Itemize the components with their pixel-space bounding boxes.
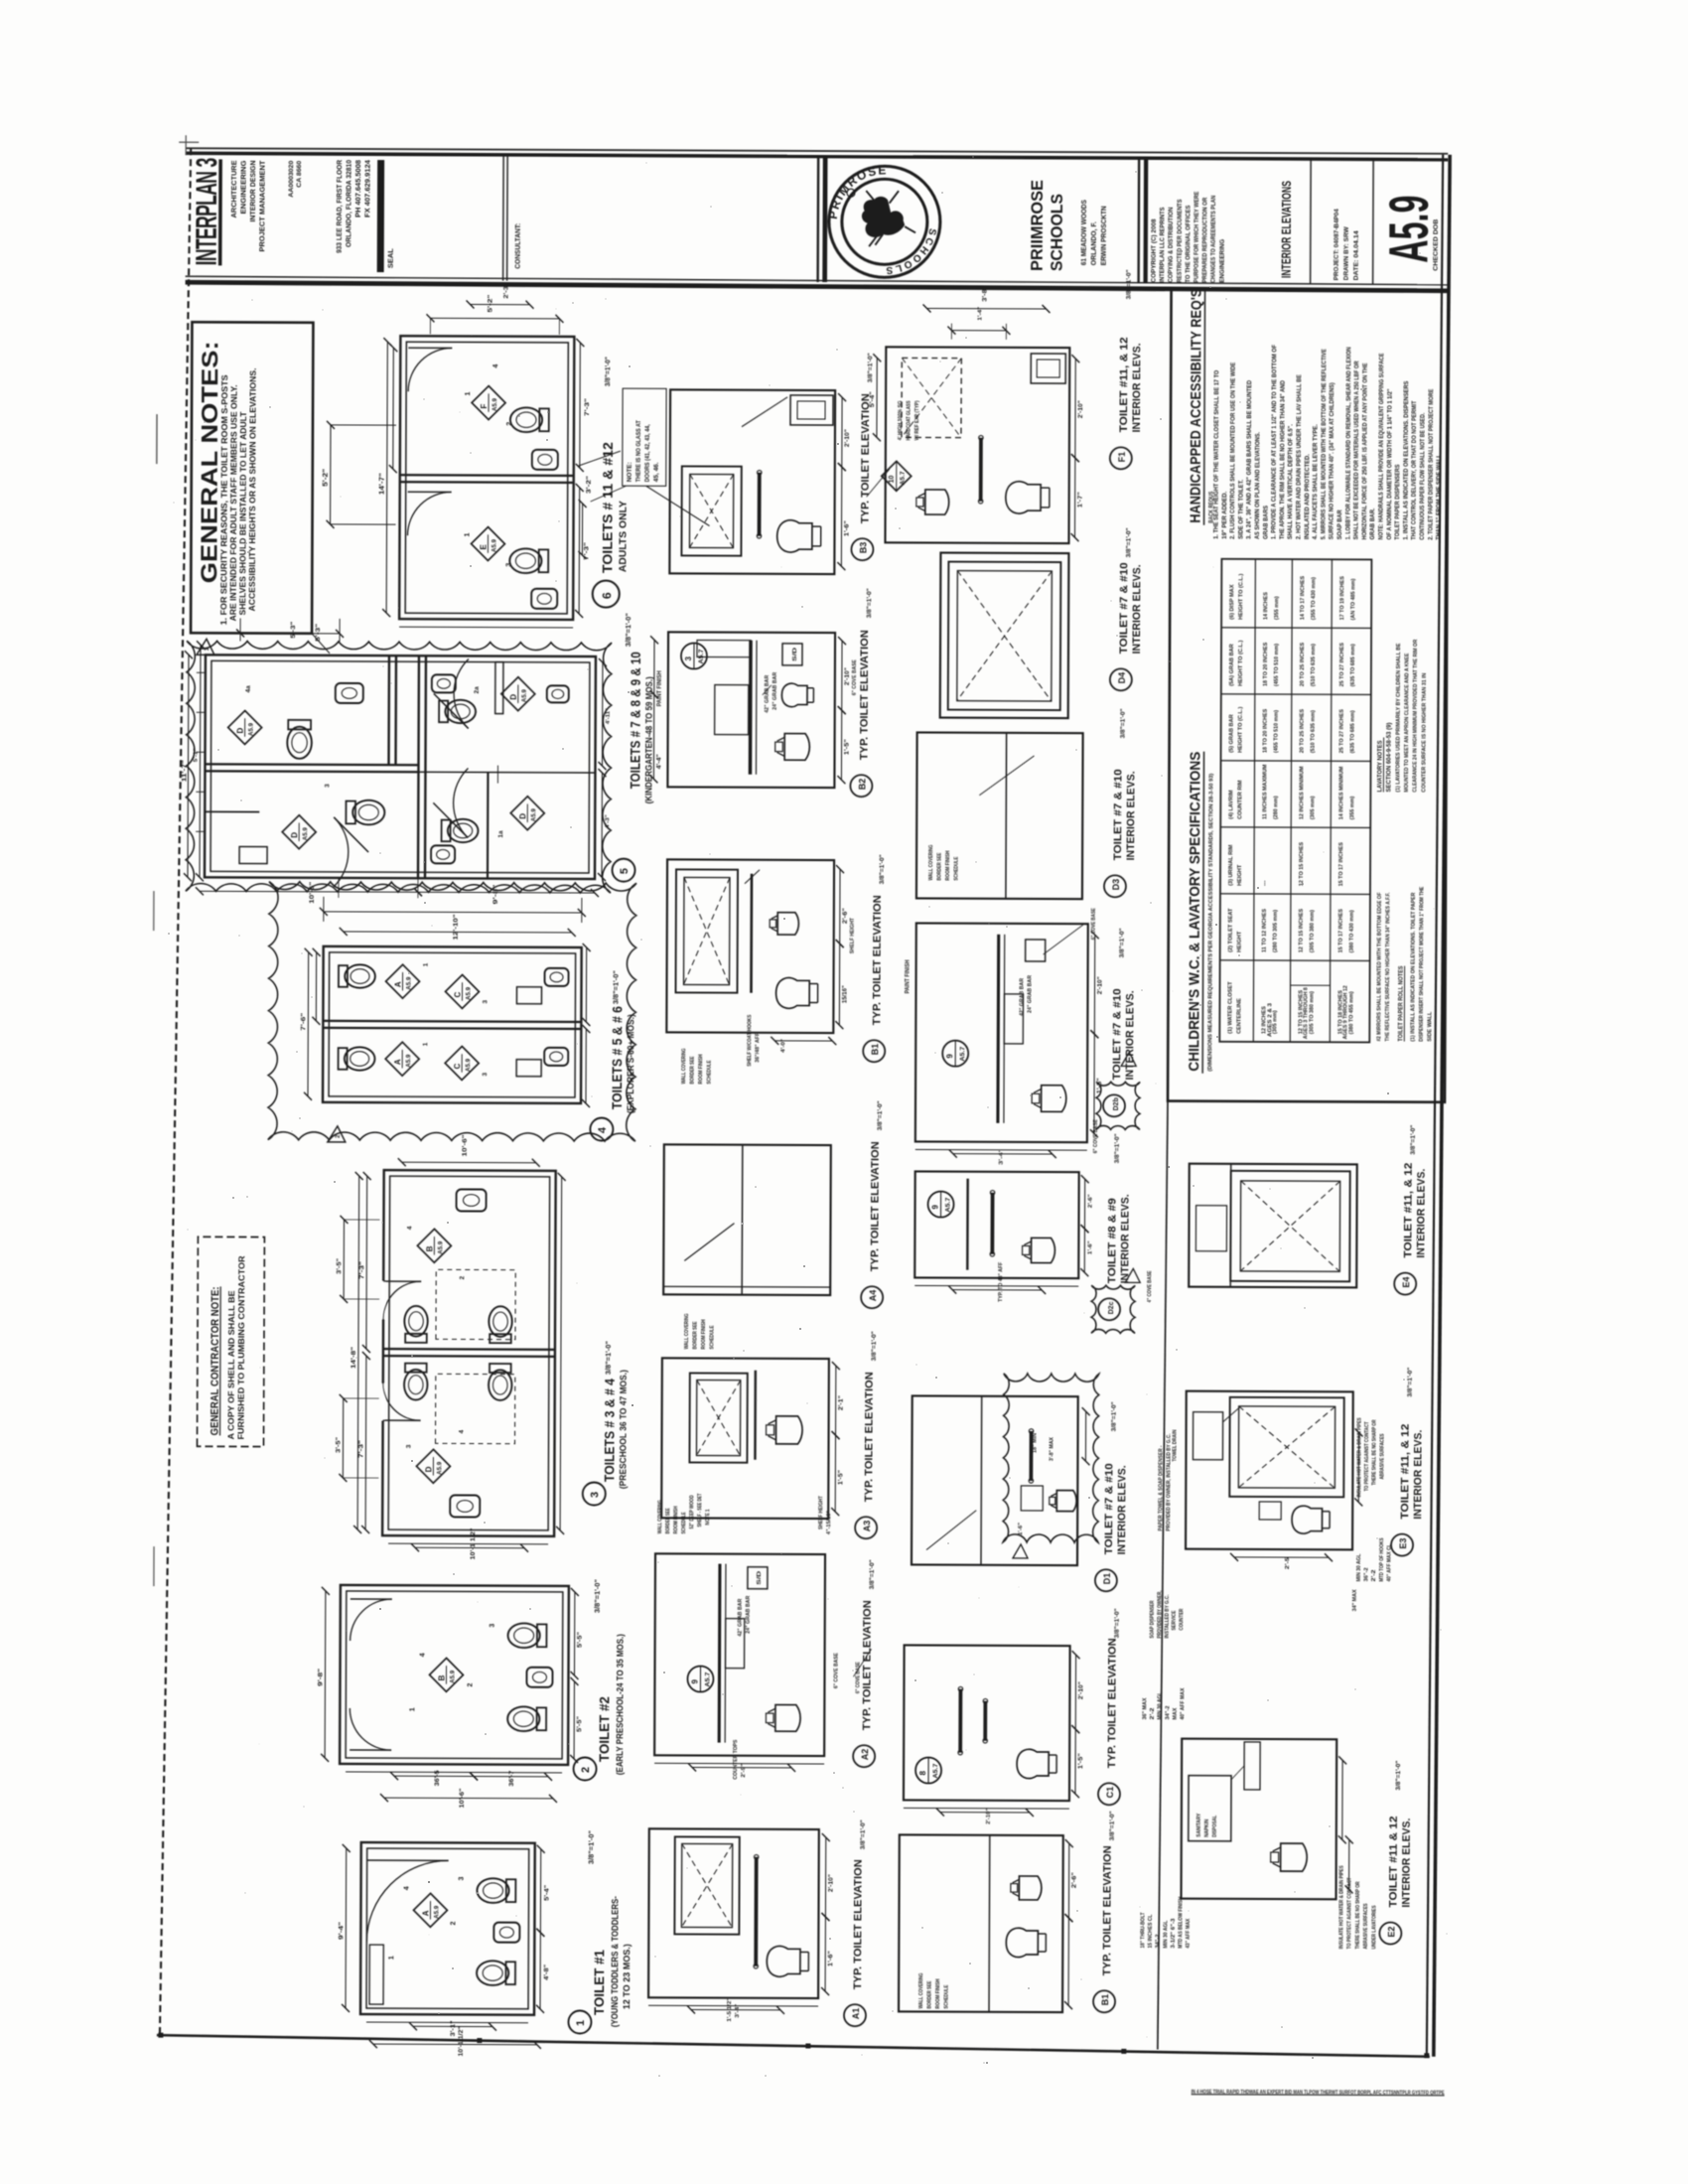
svg-text:A5.7: A5.7 xyxy=(945,1197,952,1212)
svg-text:D: D xyxy=(236,727,245,733)
svg-text:(5A) GRAB BAR: (5A) GRAB BAR xyxy=(1229,644,1235,686)
svg-text:3'-8": 3'-8" xyxy=(983,286,989,302)
svg-text:PRIIMROSE: PRIIMROSE xyxy=(1028,180,1047,271)
svg-text:25 TO 27 INCHES: 25 TO 27 INCHES xyxy=(1339,643,1345,687)
svg-text:11 TO 12 INCHES: 11 TO 12 INCHES xyxy=(1262,909,1268,952)
svg-text:1. FOR SECURITY REASONS, THE T: 1. FOR SECURITY REASONS, THE TOILET ROOM… xyxy=(219,374,229,626)
svg-text:DOORS (41, 42, 43, 44,: DOORS (41, 42, 43, 44, xyxy=(644,424,651,482)
svg-text:2'-2: 2'-2 xyxy=(1150,1707,1156,1719)
svg-text:1: 1 xyxy=(575,2020,587,2026)
svg-text:THAN 1" FROM THE SIDE WALL.: THAN 1" FROM THE SIDE WALL. xyxy=(1436,452,1443,539)
svg-text:D4: D4 xyxy=(1117,672,1127,684)
svg-text:8: 8 xyxy=(918,1770,927,1775)
svg-text:A5.9: A5.9 xyxy=(437,1461,443,1475)
svg-text:2. TOILET PAPER DISPENSER SHA: 2. TOILET PAPER DISPENSER SHALL NOT PROJ… xyxy=(1427,389,1435,540)
svg-text:(510 TO 635 mm): (510 TO 635 mm) xyxy=(1311,710,1317,753)
svg-text:3/8"=1'-0": 3/8"=1'-0" xyxy=(605,357,612,386)
svg-text:IN 4 HOSE TRIAL RAPID THDWAE A: IN 4 HOSE TRIAL RAPID THDWAE AN EXPERT B… xyxy=(1192,2090,1446,2097)
svg-text:OF A NOMINAL DIAMETER OR WIDTH: OF A NOMINAL DIAMETER OR WIDTH OF 1 1/4"… xyxy=(1386,388,1394,539)
svg-text:4'-8": 4'-8" xyxy=(544,1965,550,1980)
svg-text:20 TO 25 INCHES: 20 TO 25 INCHES xyxy=(1300,642,1306,686)
svg-text:TOILETS # 7 & 8 & 9 & 10: TOILETS # 7 & 8 & 9 & 10 xyxy=(627,652,643,789)
svg-text:A5.9: A5.9 xyxy=(406,1054,412,1068)
svg-text:9: 9 xyxy=(931,1205,940,1210)
svg-text:1'-5": 1'-5" xyxy=(838,1470,844,1485)
svg-text:WALL COVERING: WALL COVERING xyxy=(918,1972,924,2008)
svg-text:INTERPLAN LLC REPRINTS: INTERPLAN LLC REPRINTS xyxy=(1159,208,1166,283)
svg-text:12 TO 15 INCHES: 12 TO 15 INCHES xyxy=(1299,908,1305,952)
svg-text:3/8"=1'-0": 3/8"=1'-0" xyxy=(1119,928,1126,957)
svg-text:3/8"=1'-0": 3/8"=1'-0" xyxy=(1120,708,1127,738)
svg-text:3: 3 xyxy=(490,1624,496,1628)
svg-text:6" COVE BASE: 6" COVE BASE xyxy=(833,1653,839,1688)
svg-text:(AN TO 485 mm): (AN TO 485 mm) xyxy=(1350,578,1356,620)
svg-text:3/8"=1'-0": 3/8"=1'-0" xyxy=(871,1331,878,1361)
svg-text:3/8"=1'-0": 3/8"=1'-0" xyxy=(1114,1133,1121,1163)
svg-text:2a: 2a xyxy=(474,686,481,694)
svg-text:3. A 24", 36" AND A 42" GRAB: 3. A 24", 36" AND A 42" GRAB BARS SHALL … xyxy=(1246,379,1254,539)
svg-text:3: 3 xyxy=(482,1073,489,1077)
svg-text:D: D xyxy=(290,832,299,838)
svg-text:10'-1 1/2": 10'-1 1/2" xyxy=(458,2026,465,2056)
svg-text:7'-6": 7'-6" xyxy=(300,1013,307,1031)
svg-text:3: 3 xyxy=(684,655,693,660)
svg-text:ROOM FINISH: ROOM FINISH xyxy=(701,1319,707,1349)
svg-text:CONTINUOUS PAPER FLOW SHALL NO: CONTINUOUS PAPER FLOW SHALL NOT BE USED. xyxy=(1419,412,1427,539)
svg-text:ROOM FINISH: ROOM FINISH xyxy=(673,1506,679,1533)
svg-text:17 TO 19 INCHES: 17 TO 19 INCHES xyxy=(1339,576,1345,621)
svg-text:14 INCHES MINIMUM: 14 INCHES MINIMUM xyxy=(1338,766,1344,819)
svg-text:A5.7: A5.7 xyxy=(959,1046,966,1061)
svg-text:36'-7: 36'-7 xyxy=(509,1770,515,1787)
svg-text:MAX: MAX xyxy=(1173,1707,1179,1720)
svg-text:7'-3": 7'-3" xyxy=(358,1261,365,1279)
svg-text:3/8"=1'-0": 3/8"=1'-0" xyxy=(1111,1401,1118,1431)
svg-text:TYP. TOILET ELEVATION: TYP. TOILET ELEVATION xyxy=(869,1141,882,1271)
svg-text:SIDE WALL: SIDE WALL xyxy=(1427,1011,1433,1041)
svg-text:F: F xyxy=(480,404,489,409)
svg-text:PREPARED REPRODUCTION OR: PREPARED REPRODUCTION OR xyxy=(1201,197,1208,282)
svg-text:MIN 30 AGL: MIN 30 AGL xyxy=(1163,1920,1169,1949)
svg-text:FURNISHED TO PLUMBING CONTRACT: FURNISHED TO PLUMBING CONTRACTOR xyxy=(237,1255,247,1439)
svg-text:CHECKED DOB: CHECKED DOB xyxy=(1433,218,1440,270)
svg-text:(635 TO 685 mm): (635 TO 685 mm) xyxy=(1350,644,1356,686)
svg-text:A4: A4 xyxy=(868,1290,878,1302)
svg-text:THERE IS NO GLASS AT: THERE IS NO GLASS AT xyxy=(635,420,642,482)
svg-text:CONSULTANT:: CONSULTANT: xyxy=(513,223,522,269)
svg-text:(355 TO 430 mm): (355 TO 430 mm) xyxy=(1311,577,1317,620)
svg-text:INTERIOR ELEVS.: INTERIOR ELEVS. xyxy=(1119,1194,1131,1283)
svg-text:SCHEDULE: SCHEDULE xyxy=(709,1325,715,1349)
svg-text:CENTERLINE: CENTERLINE xyxy=(1236,998,1242,1034)
svg-text:INTERIOR DESIGN: INTERIOR DESIGN xyxy=(250,161,257,222)
svg-text:2. FLUSH CONTROLS SHALL BE MO: 2. FLUSH CONTROLS SHALL BE MOUNTED FOR U… xyxy=(1229,363,1237,539)
svg-text:4' HIGH 100% SG: 4' HIGH 100% SG xyxy=(898,400,904,440)
svg-text:BORDER SEE: BORDER SEE xyxy=(936,852,942,880)
svg-text:CLEARANCE 24 IN HIGH MINIMUM P: CLEARANCE 24 IN HIGH MINIMUM PROVIDED TH… xyxy=(1413,639,1420,793)
svg-text:---: --- xyxy=(1262,880,1268,886)
svg-text:DATE: 04.04.14: DATE: 04.04.14 xyxy=(1353,230,1360,280)
svg-text:1: 1 xyxy=(388,1956,395,1960)
svg-text:INTERIOR ELEVS.: INTERIOR ELEVS. xyxy=(1116,1465,1128,1554)
svg-text:INTERIOR ELEVS.: INTERIOR ELEVS. xyxy=(1412,1430,1424,1520)
svg-text:SEAL: SEAL xyxy=(386,248,395,268)
svg-text:3: 3 xyxy=(459,1876,466,1880)
svg-text:3/8"=1'-0": 3/8"=1'-0" xyxy=(867,353,874,382)
svg-text:COUNTER RIM: COUNTER RIM xyxy=(1237,780,1243,819)
svg-text:C: C xyxy=(453,991,462,997)
svg-text:3/8"=1'-0": 3/8"=1'-0" xyxy=(595,1579,602,1613)
svg-text:WALL COVERING: WALL COVERING xyxy=(684,1313,690,1349)
svg-text:SCHEDULE: SCHEDULE xyxy=(953,856,959,880)
svg-text:1: 1 xyxy=(422,1042,429,1046)
svg-text:4: 4 xyxy=(459,1429,466,1433)
svg-text:15 TO 17 INCHES: 15 TO 17 INCHES xyxy=(1338,909,1344,953)
svg-text:PROJECT MANAGEMENT: PROJECT MANAGEMENT xyxy=(259,160,266,252)
svg-text:1'-5": 1'-5" xyxy=(1078,1753,1084,1769)
svg-text:A COPY OF SHELL AND SHALL BE: A COPY OF SHELL AND SHALL BE xyxy=(227,1290,237,1440)
svg-text:2'-10": 2'-10" xyxy=(845,429,851,447)
svg-text:2'-6": 2'-6" xyxy=(1088,1194,1094,1208)
svg-text:D3: D3 xyxy=(1111,879,1121,891)
svg-text:B2: B2 xyxy=(857,779,867,791)
svg-text:5'-4": 5'-4" xyxy=(870,391,876,407)
svg-text:3: 3 xyxy=(505,563,512,567)
svg-text:C1: C1 xyxy=(1105,1787,1115,1799)
svg-text:SHALL NOT BE EXCEEDED FOR MATE: SHALL NOT BE EXCEEDED FOR MATERIALS USED… xyxy=(1353,361,1361,539)
svg-text:10'-6": 10'-6" xyxy=(462,1134,469,1156)
svg-text:1. THE SEAT HEIGHT OF THE WAT: 1. THE SEAT HEIGHT OF THE WATER CLOSET S… xyxy=(1212,370,1220,539)
svg-text:D2c: D2c xyxy=(1108,1301,1115,1314)
svg-text:14 TO 17 INCHES: 14 TO 17 INCHES xyxy=(1300,575,1306,620)
svg-text:E3: E3 xyxy=(1398,1538,1408,1549)
svg-text:HEIGHT TO (C.L.): HEIGHT TO (C.L.) xyxy=(1238,707,1244,753)
svg-text:B1: B1 xyxy=(1100,1994,1110,2006)
svg-text:A5.9: A5.9 xyxy=(1377,195,1440,262)
svg-text:A5.9: A5.9 xyxy=(466,986,472,1000)
svg-text:HEIGHT: HEIGHT xyxy=(1237,864,1243,886)
svg-text:18" MIN: 18" MIN xyxy=(1032,1433,1038,1453)
svg-text:SURFACE NO HIGHER THAN 40". (3: SURFACE NO HIGHER THAN 40". (34" MAX AT … xyxy=(1329,382,1336,539)
svg-text:TYP. TOILET ELEVATION: TYP. TOILET ELEVATION xyxy=(871,895,884,1025)
svg-text:NOTE:: NOTE: xyxy=(627,462,633,482)
svg-text:18" THRU-BOLT: 18" THRU-BOLT xyxy=(1140,1912,1146,1949)
svg-text:12 TO 15 INCHES: 12 TO 15 INCHES xyxy=(1298,989,1304,1034)
svg-text:2'-10": 2'-10" xyxy=(829,1874,835,1892)
svg-text:(YOUNG TODDLERS & TODDLERS-: (YOUNG TODDLERS & TODDLERS- xyxy=(610,1896,621,2027)
svg-text:18 TO 20 INCHES: 18 TO 20 INCHES xyxy=(1263,642,1269,686)
svg-text:15 TO 18 INCHES: 15 TO 18 INCHES xyxy=(1337,990,1343,1035)
svg-text:S/D: S/D xyxy=(792,648,798,661)
svg-text:SHELVES SHOULD BE INSTALLED TO: SHELVES SHOULD BE INSTALLED TO LET ADULT xyxy=(238,411,248,615)
svg-text:9'-4": 9'-4" xyxy=(338,1922,345,1940)
svg-text:ROOM FINISH: ROOM FINISH xyxy=(945,851,951,881)
svg-text:AS SHOWN ON PLAN AND ELEVATION: AS SHOWN ON PLAN AND ELEVATIONS. xyxy=(1254,432,1261,539)
svg-text:ARCHITECTURE: ARCHITECTURE xyxy=(231,160,238,218)
svg-text:ARE INTENDED FOR ADULT STAFF M: ARE INTENDED FOR ADULT STAFF MEMBERS USE… xyxy=(229,384,239,621)
svg-text:MIN 30 AGL: MIN 30 AGL xyxy=(1157,1691,1163,1720)
svg-text:UNDER LAVATORIES: UNDER LAVATORIES xyxy=(1371,1905,1377,1949)
svg-text:1a: 1a xyxy=(497,830,504,838)
svg-text:C: C xyxy=(453,1063,462,1069)
svg-text:10'-6": 10'-6" xyxy=(459,1788,466,1808)
svg-text:COUNTER: COUNTER xyxy=(1179,1609,1185,1631)
svg-text:(305 TO 380 mm): (305 TO 380 mm) xyxy=(1310,910,1316,952)
svg-text:TYP. TOILET ELEVATION: TYP. TOILET ELEVATION xyxy=(860,393,873,523)
svg-text:TO PROTECT AGAINST CONTACT: TO PROTECT AGAINST CONTACT xyxy=(1364,1421,1370,1492)
svg-text:6" COVE BASE: 6" COVE BASE xyxy=(1093,1119,1099,1153)
svg-text:3/8"=1'-0": 3/8"=1'-0" xyxy=(1410,1125,1417,1155)
svg-text:A5.9: A5.9 xyxy=(434,1905,440,1919)
svg-text:HEIGHT TO (C.L.): HEIGHT TO (C.L.) xyxy=(1238,641,1244,686)
svg-text:(305 mm): (305 mm) xyxy=(1310,796,1316,819)
svg-text:INSULATED AND PROTECTED.: INSULATED AND PROTECTED. xyxy=(1304,454,1311,539)
svg-text:WALL COVERING: WALL COVERING xyxy=(928,844,934,880)
svg-text:3/8"=1'-0": 3/8"=1'-0" xyxy=(1126,269,1133,299)
svg-text:36" MAX: 36" MAX xyxy=(1142,1697,1148,1720)
svg-text:3'-4": 3'-4" xyxy=(999,1148,1005,1165)
svg-text:SHELF HEIGHT: SHELF HEIGHT xyxy=(818,1495,824,1529)
svg-text:ROOM FINISH: ROOM FINISH xyxy=(935,1979,941,2009)
svg-text:6: 6 xyxy=(600,592,614,599)
svg-text:CA 8660: CA 8660 xyxy=(296,160,303,187)
svg-text:INTERIOR ELEVS.: INTERIOR ELEVS. xyxy=(1400,1819,1412,1908)
svg-text:FX 407.629.9124: FX 407.629.9124 xyxy=(364,160,371,218)
svg-text:1'-6": 1'-6" xyxy=(828,1951,834,1966)
svg-text:A5.7: A5.7 xyxy=(932,1763,939,1778)
svg-text:GENERAL NOTES:: GENERAL NOTES: xyxy=(196,341,222,583)
svg-text:1'-5 1/2": 1'-5 1/2" xyxy=(727,1997,733,2021)
svg-text:61 MEADOW WOODS: 61 MEADOW WOODS xyxy=(1081,200,1088,265)
svg-text:24" GRAB BAR: 24" GRAB BAR xyxy=(1027,975,1033,1013)
svg-text:A: A xyxy=(421,1910,430,1916)
svg-text:9: 9 xyxy=(690,1678,699,1683)
svg-text:3: 3 xyxy=(482,1000,489,1004)
svg-text:1. PROVIDE A CLEARANCE OF AT: 1. PROVIDE A CLEARANCE OF AT LEAST 1 1/2… xyxy=(1271,345,1279,539)
svg-text:TYP. TOILET ELEVATION: TYP. TOILET ELEVATION xyxy=(852,1859,865,1989)
svg-text:A5.9: A5.9 xyxy=(450,1670,456,1683)
svg-text:2: 2 xyxy=(580,1767,592,1773)
svg-text:ENGINEERING: ENGINEERING xyxy=(240,160,247,215)
svg-text:TYP. TOILET ELEVATION: TYP. TOILET ELEVATION xyxy=(861,1600,874,1730)
svg-text:2: 2 xyxy=(459,1275,466,1279)
svg-text:3/8"=1'-0": 3/8"=1'-0" xyxy=(1407,1368,1414,1397)
svg-text:A5.7: A5.7 xyxy=(901,471,907,486)
svg-text:3/8"=1'-0": 3/8"=1'-0" xyxy=(1114,1608,1121,1638)
svg-text:2: 2 xyxy=(506,422,513,426)
svg-text:20 TO 25 INCHES: 20 TO 25 INCHES xyxy=(1300,708,1306,753)
svg-text:A: A xyxy=(394,981,403,987)
svg-text:B3: B3 xyxy=(858,542,868,554)
svg-text:(355 mm): (355 mm) xyxy=(1349,796,1355,819)
svg-text:SERVICE: SERVICE xyxy=(1172,1610,1178,1630)
svg-text:TOILETS # 11 & #12: TOILETS # 11 & #12 xyxy=(599,442,616,573)
svg-text:COPYING & DISTRIBUTION: COPYING & DISTRIBUTION xyxy=(1168,207,1175,283)
svg-text:4: 4 xyxy=(404,1886,411,1890)
svg-text:(KINDERGARTEN-48 TO 59 MOS.): (KINDERGARTEN-48 TO 59 MOS.) xyxy=(643,676,654,803)
svg-text:2. HOT WATER AND DRAIN PIPES: 2. HOT WATER AND DRAIN PIPES UNDER THE L… xyxy=(1295,374,1303,539)
svg-text:933 LEE ROAD, FIRST FLOOR: 933 LEE ROAD, FIRST FLOOR xyxy=(337,160,344,253)
svg-text:(1) WATER CLOSET: (1) WATER CLOSET xyxy=(1227,981,1233,1034)
svg-text:TYP. TOILET ELEVATION: TYP. TOILET ELEVATION xyxy=(1106,1638,1119,1768)
svg-text:15/16": 15/16" xyxy=(842,985,848,1003)
svg-text:A5.9: A5.9 xyxy=(438,1240,444,1254)
svg-text:1: 1 xyxy=(465,391,472,395)
svg-text:TOILET PAPER ROLL NOTES: TOILET PAPER ROLL NOTES xyxy=(1398,966,1404,1042)
svg-text:A5.9: A5.9 xyxy=(492,538,497,552)
svg-text:NOTE 1: NOTE 1 xyxy=(705,1509,711,1525)
svg-text:3: 3 xyxy=(589,1492,601,1498)
svg-text:42" GRAB BAR: 42" GRAB BAR xyxy=(738,1599,744,1637)
svg-text:5'-1": 5'-1" xyxy=(193,748,199,762)
svg-text:B: B xyxy=(437,1674,446,1680)
svg-text:25 TO 27 INCHES: 25 TO 27 INCHES xyxy=(1339,709,1345,754)
svg-text:INSULATE HOT WATER & DRAIN PIP: INSULATE HOT WATER & DRAIN PIPES xyxy=(1356,1417,1362,1497)
svg-text:5. MIRRORS SHALL BE MOUNTED W: 5. MIRRORS SHALL BE MOUNTED WITH THE BOT… xyxy=(1320,349,1328,539)
svg-text:3/8"=1'-0": 3/8"=1'-0" xyxy=(613,970,620,1004)
svg-text:PURPOSE FOR WHICH THEY WERE: PURPOSE FOR WHICH THEY WERE xyxy=(1194,192,1200,283)
svg-text:SCHOOLS: SCHOOLS xyxy=(1048,194,1066,271)
svg-text:36"/48" AFF: 36"/48" AFF xyxy=(755,1032,761,1063)
svg-text:1: 1 xyxy=(409,1707,416,1711)
svg-text:2'-2: 2'-2 xyxy=(1371,1569,1377,1581)
svg-text:PAINT FINISH: PAINT FINISH xyxy=(657,670,663,706)
svg-text:TOILETS # 3 & # 4: TOILETS # 3 & # 4 xyxy=(601,1379,617,1482)
svg-text:SECTION 604-9-58-53 (9): SECTION 604-9-58-53 (9) xyxy=(1386,723,1392,793)
svg-text:INTERIOR ELEVS.: INTERIOR ELEVS. xyxy=(1131,564,1143,654)
svg-text:4'-3": 4'-3" xyxy=(605,814,611,828)
svg-text:(EXPLORER'S-60+ MOS.): (EXPLORER'S-60+ MOS.) xyxy=(626,1014,635,1113)
svg-text:NOTE: HANDRAILS SHALL PROVIDE: NOTE: HANDRAILS SHALL PROVIDE AN EQUIVAL… xyxy=(1377,353,1385,539)
svg-text:3/8"=1'-0": 3/8"=1'-0" xyxy=(869,1559,876,1589)
svg-text:A5.9: A5.9 xyxy=(492,397,498,411)
svg-text:3: 3 xyxy=(405,1444,412,1448)
svg-text:7'-3": 7'-3" xyxy=(584,398,591,416)
svg-text:SHALL HAVE A VERTICAL DEPTH OF: SHALL HAVE A VERTICAL DEPTH OF 6.5". xyxy=(1287,424,1295,539)
svg-text:52" DEEP WOOD: 52" DEEP WOOD xyxy=(689,1495,695,1529)
svg-text:A1: A1 xyxy=(851,2008,861,2020)
svg-text:INTERIOR ELEVATIONS: INTERIOR ELEVATIONS xyxy=(1280,181,1294,278)
svg-text:ORLANDO, FLORIDA 32810: ORLANDO, FLORIDA 32810 xyxy=(346,160,352,247)
svg-text:B1: B1 xyxy=(870,1044,880,1056)
svg-text:19" PER ADDED.: 19" PER ADDED. xyxy=(1221,492,1228,539)
svg-text:1'-6": 1'-6" xyxy=(1018,1522,1024,1535)
svg-text:(380 TO 430 mm): (380 TO 430 mm) xyxy=(1349,910,1355,952)
svg-text:INTERIOR ELEVS.: INTERIOR ELEVS. xyxy=(1131,343,1143,432)
svg-text:TOILET #8 & #9: TOILET #8 & #9 xyxy=(1106,1198,1118,1283)
svg-text:DRAWN BY: SRW: DRAWN BY: SRW xyxy=(1343,225,1350,280)
svg-text:TOILET #7 & #10: TOILET #7 & #10 xyxy=(1103,1463,1115,1554)
svg-text:34"-2: 34"-2 xyxy=(1165,1705,1171,1719)
svg-text:E2: E2 xyxy=(1386,1927,1396,1938)
svg-text:A5.9: A5.9 xyxy=(522,689,528,703)
svg-text:SOAP BAR: SOAP BAR xyxy=(1336,510,1343,540)
svg-text:WALL COVERING: WALL COVERING xyxy=(657,1500,663,1533)
svg-text:NAPKIN: NAPKIN xyxy=(1204,1819,1210,1836)
svg-text:D1: D1 xyxy=(1102,1573,1112,1585)
svg-text:BORDER SEE: BORDER SEE xyxy=(692,1321,698,1349)
svg-text:2'-10": 2'-10" xyxy=(986,1808,992,1823)
svg-text:BORDER SEE: BORDER SEE xyxy=(927,1980,933,2008)
svg-text:B: B xyxy=(425,1245,434,1251)
svg-text:3/8"=1'-0": 3/8"=1'-0" xyxy=(1125,527,1132,557)
svg-text:(455 TO 510 mm): (455 TO 510 mm) xyxy=(1274,710,1280,753)
svg-text:INSULATE HOT WATER & DRAIN PIP: INSULATE HOT WATER & DRAIN PIPES xyxy=(1338,1865,1344,1949)
svg-text:ADULTS ONLY: ADULTS ONLY xyxy=(618,501,629,572)
svg-text:1'-7": 1'-7" xyxy=(1078,492,1084,508)
svg-text:42" GRAB BAR: 42" GRAB BAR xyxy=(1019,978,1025,1016)
svg-text:1'-6": 1'-6" xyxy=(844,520,850,536)
svg-text:MIN 30 AGL: MIN 30 AGL xyxy=(1356,1553,1362,1582)
svg-text:15 INCHES CL: 15 INCHES CL xyxy=(1148,1914,1154,1949)
svg-text:D: D xyxy=(518,813,527,819)
svg-text:THERE SHALL BE NO SHARP OR: THERE SHALL BE NO SHARP OR xyxy=(1372,1419,1378,1485)
svg-text:4: 4 xyxy=(406,1226,413,1230)
svg-text:12'-10": 12'-10" xyxy=(453,914,460,940)
svg-text:6" COVE BASE: 6" COVE BASE xyxy=(855,1662,861,1693)
svg-text:RESTRICTED PER DOCUMENTS: RESTRICTED PER DOCUMENTS xyxy=(1176,200,1183,283)
svg-text:12 INCHES MINIMUM: 12 INCHES MINIMUM xyxy=(1299,766,1305,819)
svg-text:SHELF HEIGHT: SHELF HEIGHT xyxy=(850,918,856,954)
svg-text:INSTALLED BY G.C.: INSTALLED BY G.C. xyxy=(1165,1594,1171,1638)
svg-text:A5.7: A5.7 xyxy=(704,1672,711,1686)
svg-text:2'-10": 2'-10" xyxy=(1097,976,1103,994)
svg-text:MOUNTED TO MEET AN APRON CLEAR: MOUNTED TO MEET AN APRON CLEARANCE AND A… xyxy=(1404,653,1411,792)
svg-text:WALL COVERING: WALL COVERING xyxy=(681,1048,687,1084)
svg-text:TOILET PAPER DISPENSERS: TOILET PAPER DISPENSERS xyxy=(1394,465,1401,540)
svg-text:PAPER TOWEL & SOAP DISPENSER -: PAPER TOWEL & SOAP DISPENSER - xyxy=(1158,1445,1164,1530)
svg-text:12 INCHES: 12 INCHES xyxy=(1261,1006,1267,1034)
svg-text:TOILET #11, & 12: TOILET #11, & 12 xyxy=(1118,337,1130,432)
svg-text:CHANGES TO AGREEMENTS PLAN: CHANGES TO AGREEMENTS PLAN xyxy=(1210,195,1217,282)
svg-text:24" GRAB BAR: 24" GRAB BAR xyxy=(746,1596,752,1634)
svg-text:THE REFLECTIVE SURFACE NO HIGH: THE REFLECTIVE SURFACE NO HIGHER THAN 34… xyxy=(1385,892,1392,1041)
svg-text:10: 10 xyxy=(889,475,896,483)
svg-text:BORDER SEE: BORDER SEE xyxy=(665,1508,671,1533)
svg-text:3/8"=1'-0": 3/8"=1'-0" xyxy=(1109,1811,1116,1840)
svg-text:5'-2": 5'-2" xyxy=(487,295,493,313)
svg-text:TYP. TO 48" AFF: TYP. TO 48" AFF xyxy=(998,1261,1004,1302)
svg-text:PAINT FINISH: PAINT FINISH xyxy=(905,959,911,993)
svg-text:2'-3": 2'-3" xyxy=(504,282,510,298)
svg-text:THE APRON. THE RIM SHALL BE N: THE APRON. THE RIM SHALL BE NO HIGHER TH… xyxy=(1279,380,1287,539)
svg-text:SIDE OF THE TOILET.: SIDE OF THE TOILET. xyxy=(1237,480,1244,539)
svg-text:A5.9: A5.9 xyxy=(531,808,537,822)
svg-text:3'-8" MAX: 3'-8" MAX xyxy=(1049,1437,1055,1462)
svg-text:(EARLY PRESCHOOL-24 TO 35 MOS.: (EARLY PRESCHOOL-24 TO 35 MOS.) xyxy=(615,1634,626,1775)
svg-text:TOILET #1: TOILET #1 xyxy=(591,1950,607,2015)
svg-text:4. ALL FAUCETS SHALL BE LEVER: 4. ALL FAUCETS SHALL BE LEVER TYPE. xyxy=(1312,424,1320,539)
svg-text:2'-6": 2'-6" xyxy=(843,908,849,924)
svg-text:COUNTER SURFACE IS NO HIGHER T: COUNTER SURFACE IS NO HIGHER THAN 31 IN xyxy=(1421,673,1428,793)
svg-text:DISPOSAL: DISPOSAL xyxy=(1212,1815,1218,1837)
svg-text:36'-5: 36'-5 xyxy=(435,1770,441,1787)
svg-text:11 INCHES MAXIMUM: 11 INCHES MAXIMUM xyxy=(1262,764,1268,819)
svg-text:5'-3": 5'-3" xyxy=(291,622,297,639)
svg-text:ABRASIVE SURFACES: ABRASIVE SURFACES xyxy=(1379,1433,1385,1479)
svg-text:2'-1": 2'-1" xyxy=(839,1395,845,1410)
svg-text:E4: E4 xyxy=(1401,1277,1411,1288)
svg-text:D: D xyxy=(509,694,518,700)
svg-text:2'-5: 2'-5 xyxy=(1285,1557,1291,1569)
svg-text:2'-9": 2'-9" xyxy=(741,1763,747,1777)
svg-text:3/8"=1'-0": 3/8"=1'-0" xyxy=(879,854,886,884)
svg-text:(280 mm): (280 mm) xyxy=(1273,796,1279,819)
svg-text:A3: A3 xyxy=(862,1521,872,1532)
svg-text:2'-10": 2'-10" xyxy=(1078,1681,1084,1699)
svg-text:SOAP DISPENSER: SOAP DISPENSER xyxy=(1150,1600,1156,1638)
svg-text:5'-4": 5'-4" xyxy=(544,1885,550,1901)
